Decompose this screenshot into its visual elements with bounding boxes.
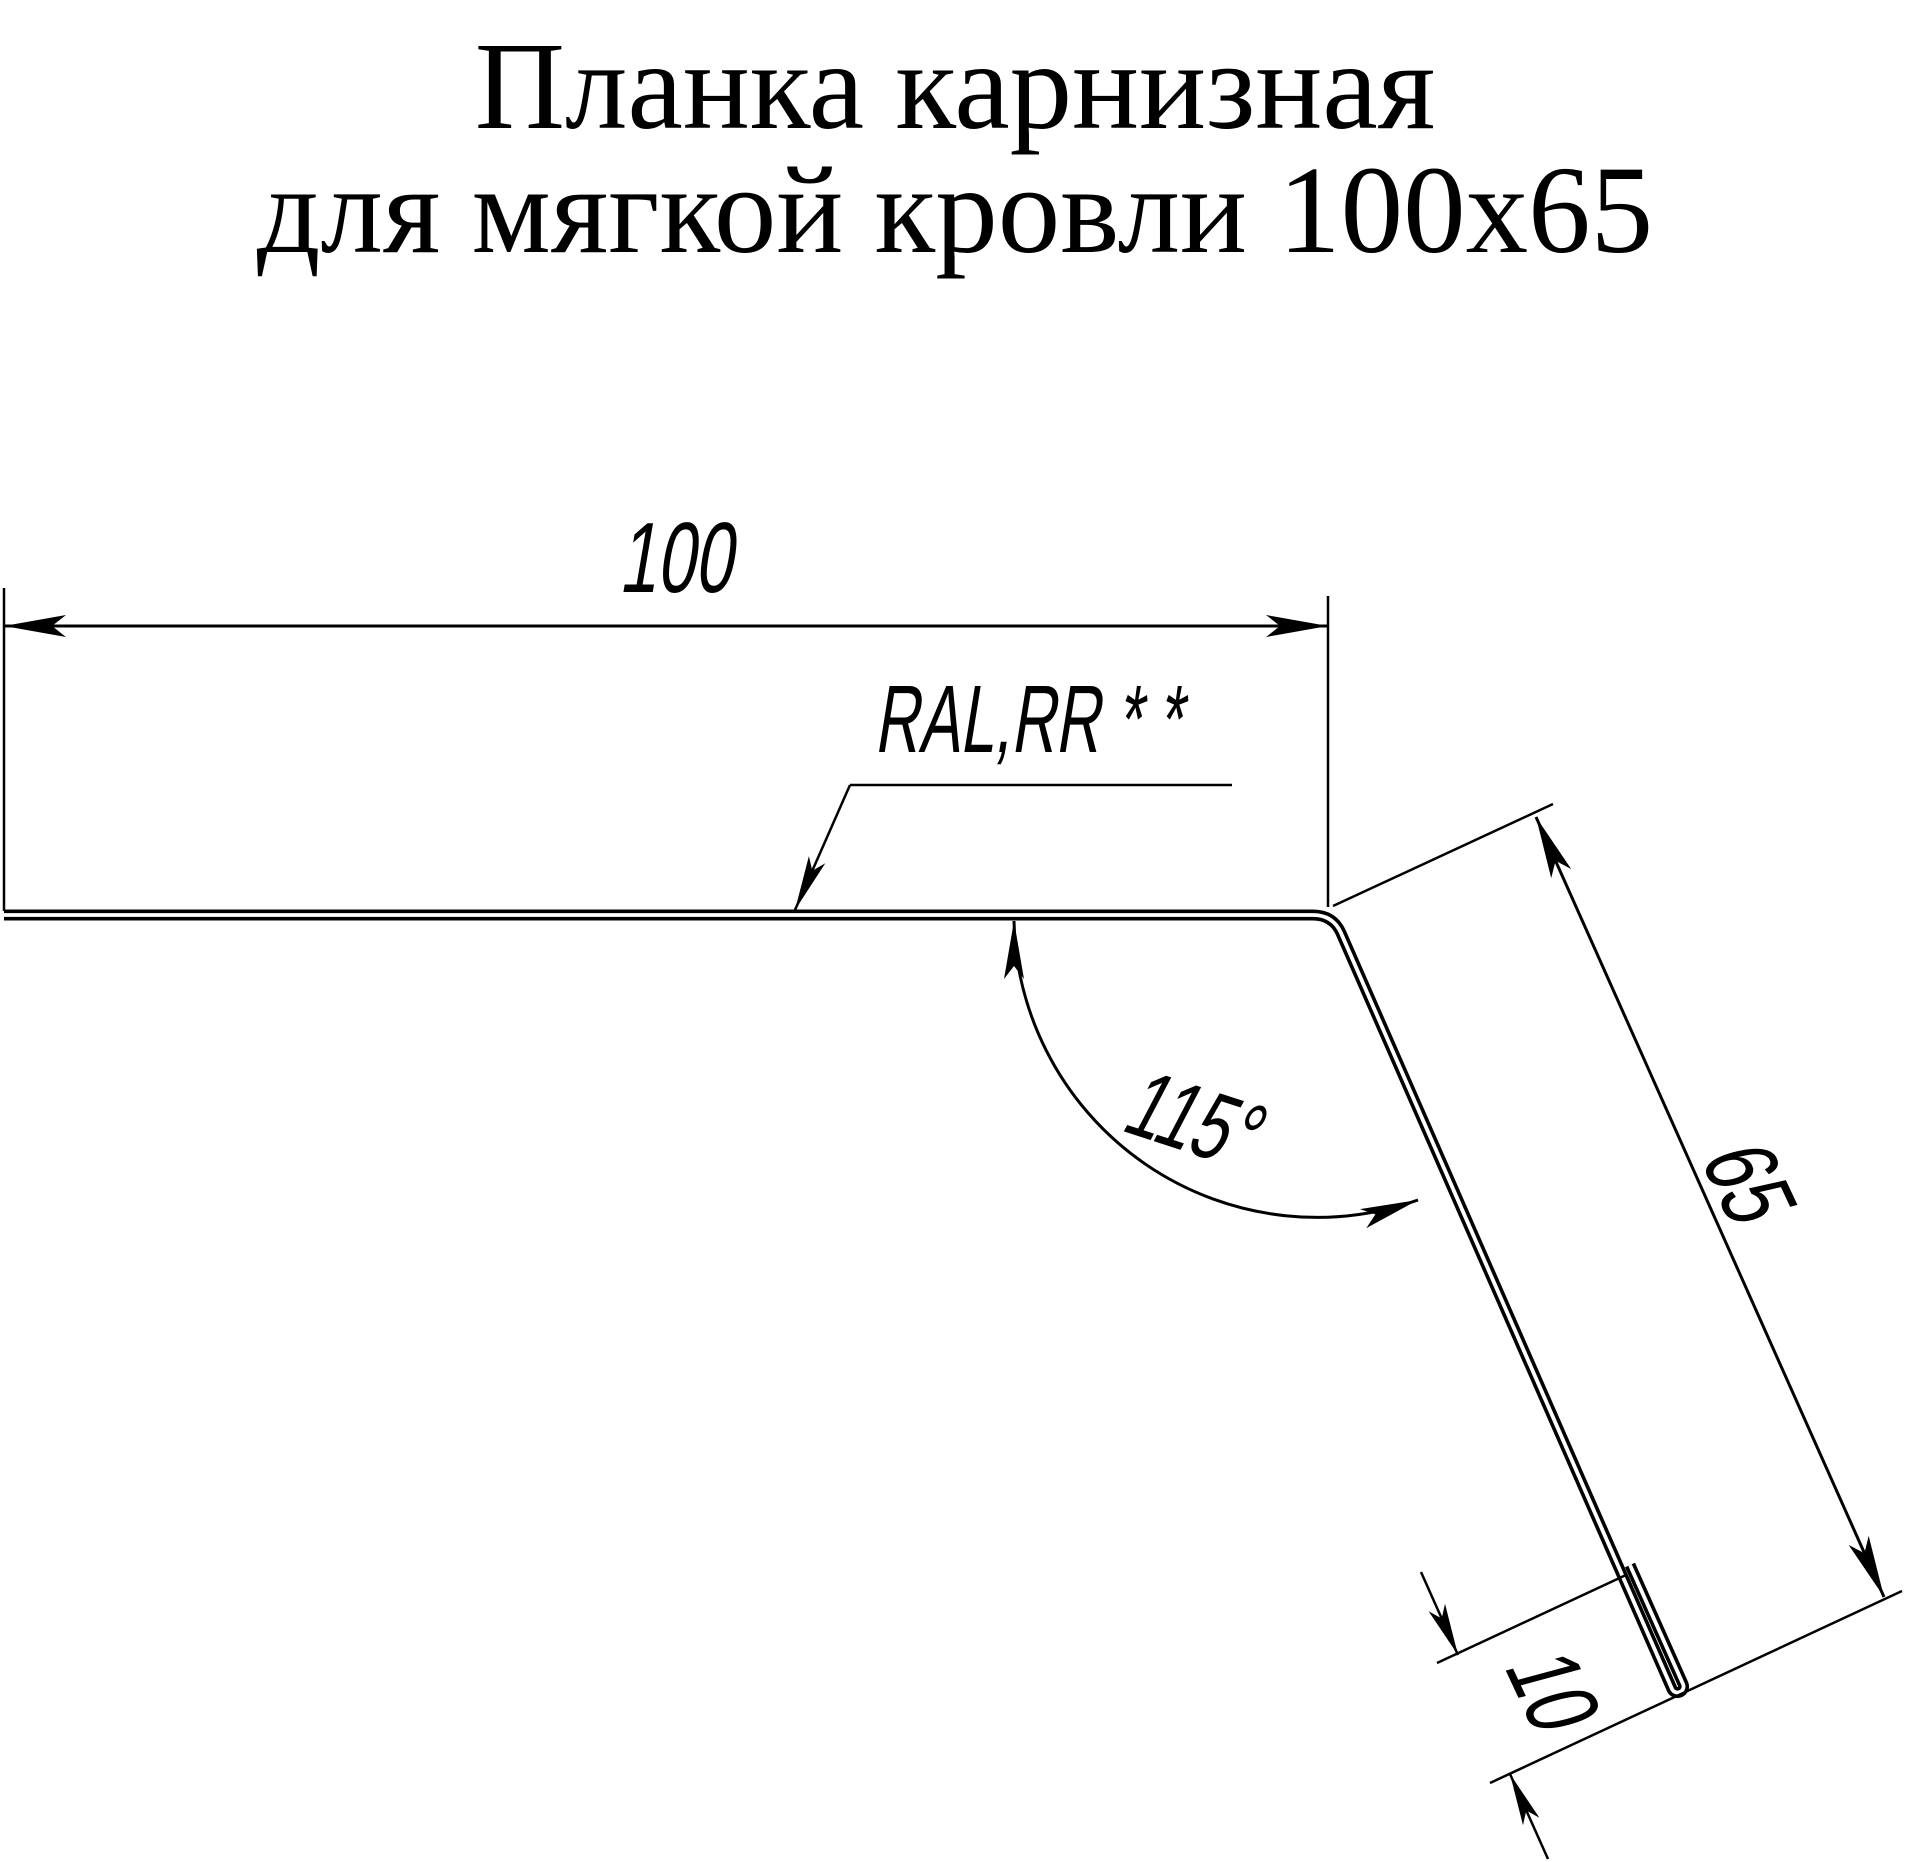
drawing-sheet: Планка карнизная для мягкой кровли 100x6… [0, 0, 1920, 1862]
profile-outline [4, 915, 1684, 1693]
dimension-label-10: 10 [1482, 1642, 1624, 1742]
dimension-label-100: 100 [615, 503, 747, 614]
extension-line-bend [1333, 804, 1553, 906]
dimension-arrow-65-bottom [1849, 1536, 1884, 1597]
coating-note-label: RAL,RR * * [871, 666, 1195, 773]
dimension-arrow-10-top [1429, 1604, 1458, 1655]
drawing-title-line1: Планка карнизная [475, 18, 1435, 156]
eaves-strip-technical-drawing: Планка карнизная для мягкой кровли 100x6… [0, 0, 1920, 1862]
coating-note-leader-arrow [795, 856, 825, 910]
angle-label-115: 115° [1109, 1052, 1283, 1189]
extension-line-hem-top [1437, 1575, 1626, 1663]
dimension-label-65: 65 [1678, 1134, 1820, 1234]
dimension-arrow-10-bottom [1510, 1774, 1539, 1825]
profile-core-line [4, 915, 1684, 1693]
dimension-arrow-65-top [1536, 817, 1571, 878]
drawing-title-line2: для мягкой кровли 100x65 [257, 142, 1653, 280]
angle-arc-arrow-top [1004, 921, 1024, 979]
